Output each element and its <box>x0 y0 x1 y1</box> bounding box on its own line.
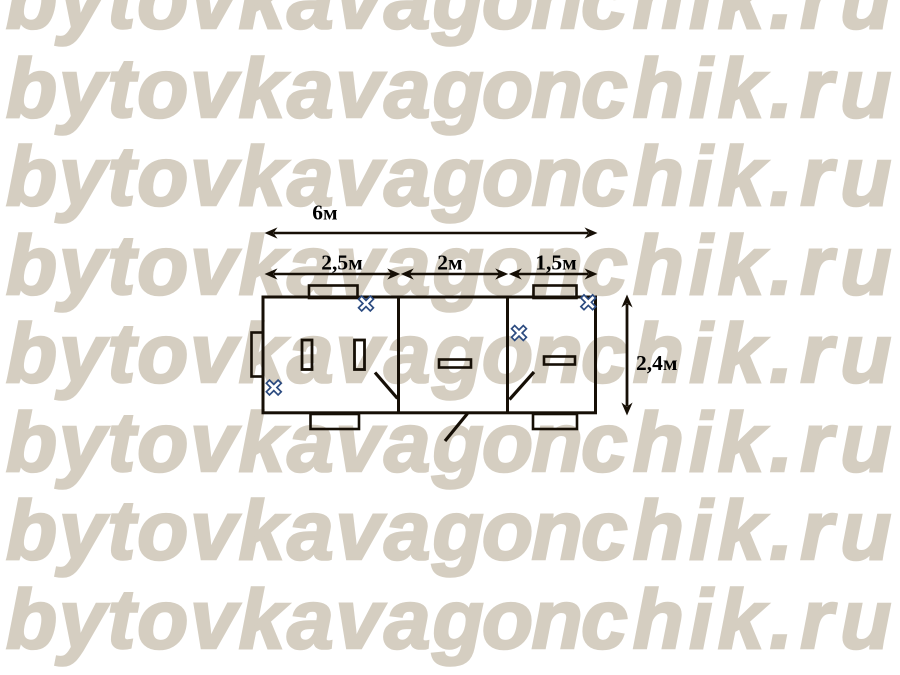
svg-text:1,5м: 1,5м <box>535 251 577 275</box>
svg-text:2,5м: 2,5м <box>321 251 363 275</box>
svg-text:2м: 2м <box>437 251 462 275</box>
svg-text:6м: 6м <box>312 201 337 225</box>
svg-text:2,4м: 2,4м <box>636 351 678 375</box>
